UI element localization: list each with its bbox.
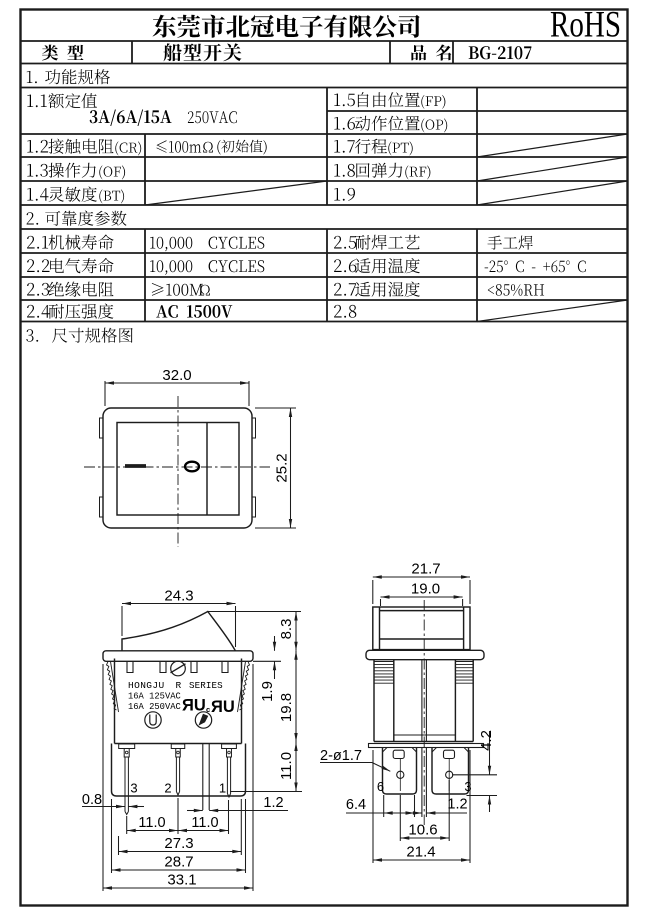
svg-text:1: 1 <box>219 781 226 796</box>
svg-text:3: 3 <box>130 781 137 796</box>
svg-text:6: 6 <box>377 779 384 794</box>
svg-text:2: 2 <box>164 781 171 796</box>
svg-text:11.0: 11.0 <box>191 815 218 831</box>
svg-text:ЯU: ЯU <box>211 698 235 716</box>
svg-text:16A 125VAC: 16A 125VAC <box>128 692 181 702</box>
svg-text:1.2: 1.2 <box>263 795 283 811</box>
svg-text:11.0: 11.0 <box>278 752 295 780</box>
svg-text:24.3: 24.3 <box>164 588 193 605</box>
svg-text:28.7: 28.7 <box>164 854 193 871</box>
svg-text:21.4: 21.4 <box>406 844 435 861</box>
svg-text:4.2: 4.2 <box>478 730 495 751</box>
svg-text:27.3: 27.3 <box>164 835 193 852</box>
svg-text:1.9: 1.9 <box>259 681 276 702</box>
svg-text:16A 250VAC: 16A 250VAC <box>128 702 181 712</box>
svg-text:3: 3 <box>464 779 471 794</box>
svg-text:1.2: 1.2 <box>447 797 467 813</box>
svg-text:11.0: 11.0 <box>138 815 165 831</box>
svg-text:SERIES: SERIES <box>189 680 223 691</box>
svg-text:HONGJU: HONGJU <box>128 680 165 691</box>
svg-text:RoHS: RoHS <box>550 5 621 46</box>
svg-text:R: R <box>176 680 182 691</box>
svg-text:2-ø1.7: 2-ø1.7 <box>320 748 362 764</box>
svg-text:10.6: 10.6 <box>408 822 437 839</box>
svg-text:33.1: 33.1 <box>167 872 196 889</box>
svg-text:32.0: 32.0 <box>162 367 191 384</box>
svg-text:21.7: 21.7 <box>411 561 440 578</box>
svg-text:25.2: 25.2 <box>274 453 291 482</box>
svg-text:8.3: 8.3 <box>278 619 295 640</box>
svg-text:0.8: 0.8 <box>82 792 102 808</box>
svg-text:19.8: 19.8 <box>278 693 295 722</box>
svg-text:6.4: 6.4 <box>346 797 366 813</box>
svg-text:19.0: 19.0 <box>411 581 440 598</box>
